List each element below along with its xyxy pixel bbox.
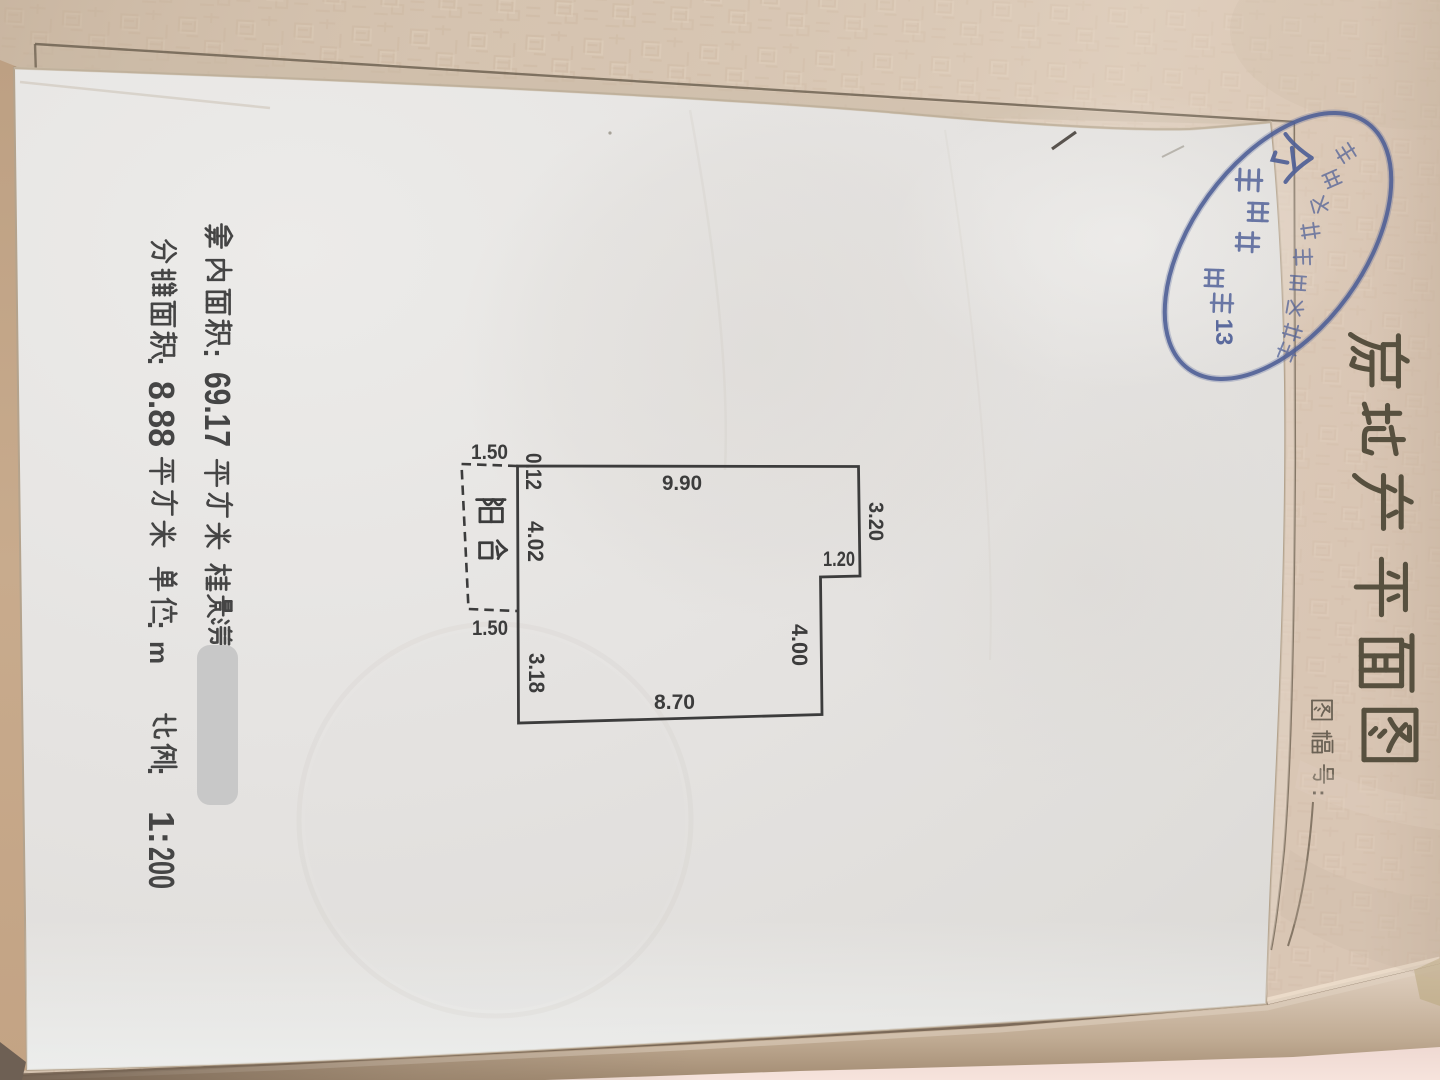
svg-text:8.88: 8.88 bbox=[141, 381, 182, 447]
svg-text::: : bbox=[141, 766, 174, 776]
svg-text:200: 200 bbox=[141, 847, 182, 889]
svg-text:1.50: 1.50 bbox=[472, 617, 508, 640]
svg-text::: : bbox=[141, 356, 174, 366]
svg-text:3.18: 3.18 bbox=[524, 653, 549, 693]
svg-text::: : bbox=[197, 348, 230, 358]
svg-text:0.12: 0.12 bbox=[521, 453, 546, 490]
svg-text:4.00: 4.00 bbox=[787, 624, 812, 666]
svg-text:1:: 1: bbox=[141, 811, 182, 844]
svg-text:1.50: 1.50 bbox=[471, 441, 508, 464]
svg-text:8.70: 8.70 bbox=[654, 691, 695, 714]
svg-text:13: 13 bbox=[1210, 319, 1237, 346]
svg-text:3.20: 3.20 bbox=[864, 502, 887, 541]
svg-text:9.90: 9.90 bbox=[662, 472, 702, 495]
svg-text:m: m bbox=[144, 641, 174, 664]
svg-text::: : bbox=[141, 620, 174, 630]
svg-text:4.02: 4.02 bbox=[523, 521, 548, 562]
svg-text:1.20: 1.20 bbox=[823, 548, 855, 571]
svg-text:69.17: 69.17 bbox=[197, 372, 238, 447]
